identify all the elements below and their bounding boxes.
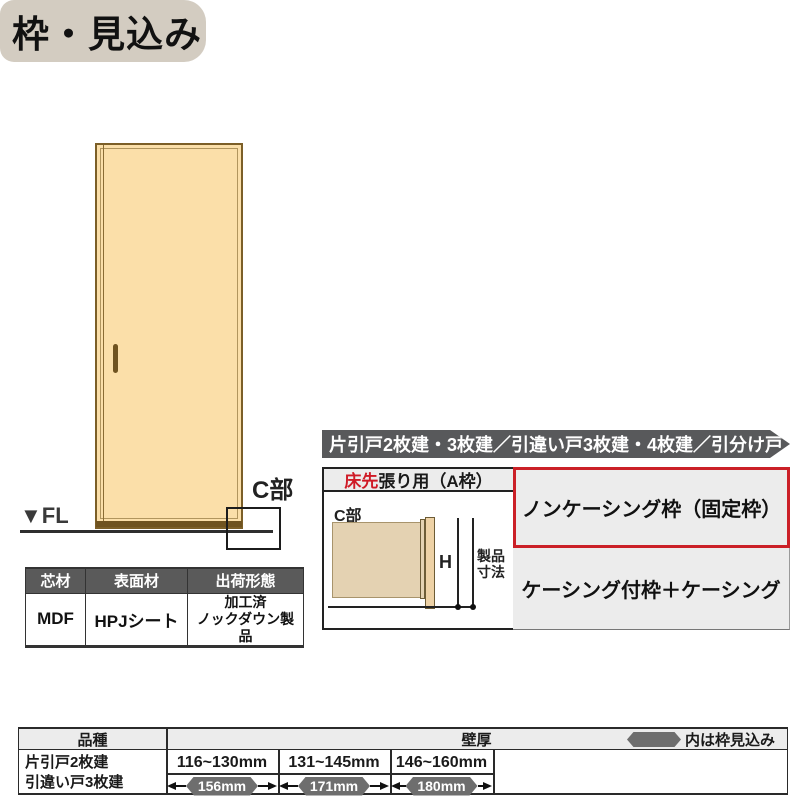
depth-badge-row-2: 171mm [279,777,389,795]
diagram-h-dimension-line [457,518,459,607]
c-section-label: C部 [252,470,293,505]
arrow-right-icon [268,782,277,790]
door-type-header-text: 片引戸2枚建・3枚建／引違い戸3枚建・4枚建／引分け戸 [329,431,783,457]
diagram-wall-section [332,522,421,598]
floor-level-label: ▼FL [20,503,69,529]
spec-header-shipping: 出荷形態 [188,568,304,593]
size-table-kind-header: 品種 [19,729,166,750]
size-table-legend: 内は枠見込み [627,729,775,750]
depth-badge-2: 171mm [298,777,370,796]
arrow-line [258,785,268,787]
spec-surface-value: HPJシート [86,593,188,646]
diagram-product-dim-line1: 製品 [477,548,505,564]
spec-shipping-line2: ノックダウン製品 [192,611,299,645]
product-name-1: 片引戸2枚建 [25,753,123,773]
door-stile-line [103,145,104,521]
door-type-header-bar: 片引戸2枚建・3枚建／引違い戸3枚建・4枚建／引分け戸 [322,430,790,458]
diagram-product-dimension-line [472,518,474,607]
arrow-line [370,785,380,787]
product-name-2: 引違い戸3枚建 [25,773,123,793]
depth-badge-row-1: 156mm [167,777,277,795]
arrow-left-icon [167,782,176,790]
range-cell-2: 131~145mm [278,752,390,773]
wall-thickness-table: 品種 壁厚 内は枠見込み 片引戸2枚建 引違い戸3枚建 116~130mm 13… [18,727,788,795]
spec-data-row: MDF HPJシート 加工済 ノックダウン製品 [26,593,304,646]
arrow-left-icon [391,782,400,790]
arrow-line [288,785,298,787]
spec-header-row: 芯材 表面材 出荷形態 [26,568,304,593]
option-noncasing-label: ノンケーシング枠（固定枠） [522,493,782,522]
door-bottom-edge [96,521,242,527]
door-handle [113,344,118,373]
door-illustration [95,143,243,529]
diagram-h-dimension-dot [455,604,461,610]
floor-type-rest-text: 張り用（A枠） [378,467,492,492]
depth-badge-1: 156mm [186,777,258,796]
depth-badge-3: 180mm [406,777,478,796]
c-section-diagram-panel: C部 H 製品 寸法 [322,492,513,630]
arrow-right-icon [380,782,389,790]
spec-core-value: MDF [26,593,86,646]
option-noncasing-frame: ノンケーシング枠（固定枠） [513,467,790,548]
page-title: 枠・見込み [12,4,202,58]
page-title-badge: 枠・見込み [0,0,206,62]
spec-header-surface: 表面材 [86,568,188,593]
range-cell-3: 146~160mm [390,752,493,773]
diagram-product-dim-line2: 寸法 [477,564,505,580]
range-cell-1: 116~130mm [166,752,278,773]
diagram-product-dim-label: 製品 寸法 [477,548,505,580]
diagram-floor-line [328,606,475,608]
c-section-callout-box [226,507,281,550]
floor-type-header: 床先張り用（A枠） [322,467,513,492]
spec-header-core: 芯材 [26,568,86,593]
floor-type-red-text: 床先 [344,467,378,492]
arrow-line [400,785,406,787]
diagram-frame-strip-wide [425,517,435,609]
depth-badge-row-3: 180mm [391,777,492,795]
spec-shipping-line1: 加工済 [192,594,299,611]
arrow-line [176,785,186,787]
diagram-product-dimension-dot [470,604,476,610]
diagram-h-label: H [439,552,452,573]
spec-shipping-value: 加工済 ノックダウン製品 [188,593,304,646]
option-casing-frame: ケーシング付枠＋ケーシング [513,548,790,630]
catalog-page: 枠・見込み ▼FL C部 芯材 表面材 出荷形態 MDF HPJシート 加工済 … [0,0,800,800]
arrow-left-icon [279,782,288,790]
material-spec-table: 芯材 表面材 出荷形態 MDF HPJシート 加工済 ノックダウン製品 [25,567,304,648]
door-inner-panel-line [100,148,238,519]
product-names: 片引戸2枚建 引違い戸3枚建 [25,753,123,793]
table-midline [166,773,493,775]
legend-hexagon-icon [627,732,681,747]
option-casing-label: ケーシング付枠＋ケーシング [521,574,780,603]
arrow-right-icon [483,782,492,790]
legend-text: 内は枠見込み [685,729,775,750]
table-vline-4 [493,750,495,793]
